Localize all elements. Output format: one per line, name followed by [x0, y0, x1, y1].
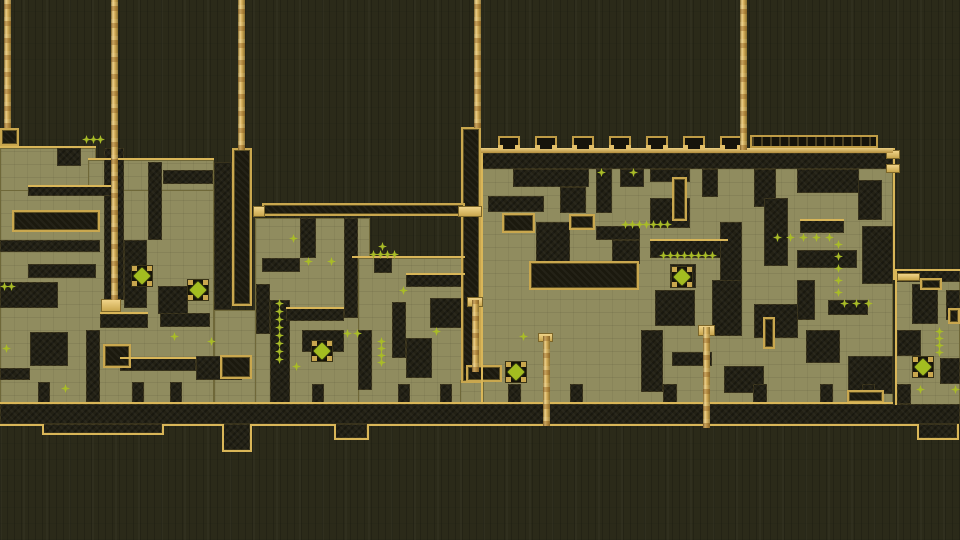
sparkle-pickup[interactable]	[378, 242, 387, 251]
gem-diamond[interactable]	[671, 266, 693, 288]
wall-block	[663, 384, 677, 404]
game-viewport[interactable]	[0, 0, 960, 540]
gold-frame	[232, 148, 252, 306]
hanging-pillar	[474, 0, 481, 128]
wall-block	[430, 298, 462, 328]
gold-frame	[529, 261, 639, 290]
gold-edge-h	[0, 402, 893, 404]
wall-block	[148, 162, 162, 240]
wall-block	[797, 250, 857, 268]
gem-diamond[interactable]	[912, 356, 934, 378]
wall-block	[406, 274, 465, 287]
wall-block	[897, 384, 911, 404]
wall-block	[720, 222, 742, 282]
wall-block	[0, 368, 30, 380]
wall-block	[398, 384, 410, 404]
wall-block	[0, 404, 960, 424]
wall-block	[858, 180, 882, 220]
wall-block	[560, 187, 586, 213]
wall-block	[358, 330, 372, 390]
gold-cap	[886, 164, 900, 173]
wall-block	[940, 358, 960, 384]
wall-block	[0, 282, 58, 308]
hanging-pillar	[4, 0, 11, 128]
gold-edge-h	[897, 269, 960, 271]
gem-diamond[interactable]	[505, 361, 527, 383]
hanging-pillar	[740, 0, 747, 150]
wall-block	[100, 314, 148, 328]
gem-diamond[interactable]	[131, 265, 153, 287]
wall-block	[160, 313, 210, 327]
wall-block	[312, 384, 324, 404]
gold-edge-h	[222, 450, 252, 452]
wall-block	[764, 198, 788, 266]
gold-edge-v	[162, 424, 164, 434]
wall-block	[86, 330, 100, 402]
wall-block	[753, 384, 767, 404]
gold-edge-h	[250, 424, 336, 426]
gem-diamond[interactable]	[187, 279, 209, 301]
gold-edge-h	[406, 273, 465, 275]
gold-frame	[103, 344, 131, 368]
wall-block	[513, 169, 589, 187]
wall-block	[374, 258, 392, 273]
gold-edge-h	[650, 239, 728, 241]
gold-edge-h	[100, 312, 148, 314]
wall-block	[170, 382, 182, 404]
wall-block	[570, 384, 583, 404]
wall-block	[702, 169, 718, 197]
wall-block	[862, 226, 893, 284]
hanging-pillar	[543, 336, 550, 426]
wall-block	[158, 286, 188, 314]
gold-frame	[502, 213, 535, 233]
gold-edge-v	[222, 424, 224, 451]
crenellation-merlon	[683, 136, 705, 149]
wall-block	[38, 382, 50, 404]
sparkle-pickup[interactable]	[96, 135, 105, 144]
gold-cap	[897, 273, 920, 281]
gold-cap	[253, 206, 265, 217]
wall-block	[797, 280, 815, 320]
gold-frame	[672, 177, 687, 221]
gold-edge-h	[0, 424, 44, 426]
wall-block	[163, 170, 213, 184]
crenellation-merlon	[720, 136, 742, 149]
wall-block	[30, 332, 68, 366]
wall-block	[214, 162, 232, 310]
gold-edge-v	[250, 424, 252, 451]
gold-edge-v	[42, 424, 44, 434]
gold-frame	[920, 278, 942, 290]
gem-diamond[interactable]	[311, 340, 333, 362]
crenellation-merlon	[572, 136, 594, 149]
wall-block	[28, 186, 112, 196]
wall-block	[917, 424, 957, 438]
crenellation-merlon	[609, 136, 631, 149]
gold-frame	[948, 308, 960, 324]
wall-block	[536, 222, 570, 262]
wall-block	[508, 384, 521, 404]
wall-block	[57, 148, 81, 166]
gold-edge-h	[88, 158, 214, 160]
gold-edge-v	[481, 148, 483, 404]
gold-edge-h	[162, 424, 224, 426]
gold-cap	[458, 206, 482, 217]
gold-frame	[220, 355, 252, 379]
gold-edge-v	[895, 269, 897, 405]
wall-block	[712, 280, 742, 336]
hanging-pillar	[472, 300, 479, 372]
gold-edge-h	[0, 146, 96, 148]
wall-block	[897, 330, 921, 356]
wall-block	[300, 218, 316, 258]
wall-block	[0, 240, 100, 252]
gold-edge-h	[42, 433, 164, 435]
wall-block	[440, 384, 452, 404]
wall-block	[481, 153, 893, 169]
gold-edge-h	[352, 256, 465, 258]
wall-block	[797, 169, 859, 193]
gold-frame	[12, 210, 100, 232]
gold-edge-h	[334, 438, 369, 440]
wall-block	[120, 358, 196, 371]
gold-frame	[0, 128, 19, 146]
wall-block	[912, 284, 938, 324]
wall-block	[256, 284, 270, 334]
crenellation-merlon	[535, 136, 557, 149]
wall-block	[754, 304, 798, 338]
wall-block	[806, 330, 840, 363]
wall-block	[42, 424, 162, 433]
gold-edge-v	[334, 424, 336, 439]
hanging-pillar	[111, 0, 118, 300]
hanging-pillar	[703, 327, 710, 428]
gold-edge-h	[917, 438, 959, 440]
wall-block	[488, 196, 544, 212]
gold-edge-h	[120, 357, 196, 359]
gold-edge-h	[286, 307, 344, 309]
wall-block	[344, 218, 358, 318]
gold-edge-h	[800, 219, 844, 221]
hanging-pillar	[238, 0, 245, 150]
wall-block	[596, 226, 640, 240]
wall-block	[334, 424, 367, 438]
wall-block	[820, 384, 833, 404]
gold-cap	[101, 299, 121, 312]
gold-frame	[569, 214, 595, 230]
gold-frame	[763, 317, 775, 349]
wall-block	[641, 330, 663, 392]
wall-block	[392, 302, 406, 358]
wall-block	[596, 169, 612, 213]
crenellation-merlon	[498, 136, 520, 149]
wall-block	[286, 308, 344, 321]
gold-edge-h	[367, 424, 919, 426]
gold-edge-h	[28, 185, 112, 187]
gold-edge-v	[957, 424, 959, 439]
wall-block	[28, 264, 96, 278]
gold-edge-v	[917, 424, 919, 439]
wall-block	[132, 382, 144, 404]
wall-block	[222, 424, 250, 450]
gold-frame	[262, 203, 465, 216]
wall-block	[828, 300, 868, 315]
wall-block	[262, 258, 300, 272]
crenellation-wall	[750, 135, 878, 148]
wall-block	[800, 220, 844, 233]
wall-block	[655, 290, 695, 326]
wall-block	[406, 338, 432, 378]
crenellation-merlon	[646, 136, 668, 149]
gold-edge-v	[367, 424, 369, 439]
